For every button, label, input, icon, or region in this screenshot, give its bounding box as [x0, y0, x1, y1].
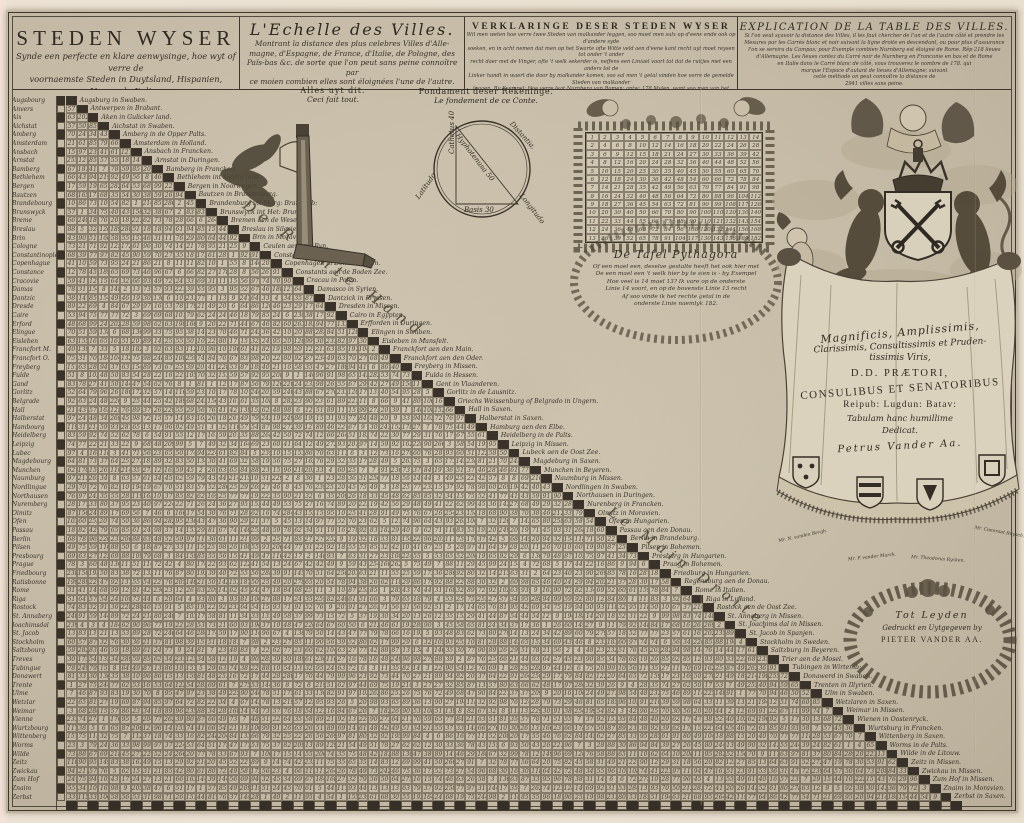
diagonal-cell — [196, 199, 207, 208]
distance-cell: 71 — [282, 603, 293, 612]
distance-cell: 9 — [822, 784, 833, 793]
distance-cell: 75 — [660, 689, 671, 698]
distance-cell: 131 — [260, 612, 271, 621]
distance-cell: 12 — [811, 784, 822, 793]
distance-cell: 65 — [433, 457, 444, 466]
distance-cell: 75 — [260, 741, 271, 750]
pythagoras-cell: 8 — [674, 133, 687, 141]
distance-cell: 50 — [843, 767, 854, 776]
distance-cell: 54 — [185, 681, 196, 690]
distance-cell: 64 — [109, 457, 120, 466]
distance-cell: 30 — [206, 457, 217, 466]
distance-cell: 24 — [88, 397, 99, 406]
distance-cell: 55 — [336, 380, 347, 389]
diagonal-city-label: Wittenberg in Saxen. — [879, 733, 945, 740]
distance-cell: 244 — [476, 793, 487, 802]
distance-cell: 51 — [271, 689, 282, 698]
distance-cell: 78 — [77, 380, 88, 389]
pythagoras-cell: 22 — [599, 217, 612, 225]
distance-cell: 72 — [131, 569, 142, 578]
distance-cell: 19 — [163, 621, 174, 630]
distance-cell: 13 — [293, 664, 304, 673]
distance-cell: 65 — [865, 741, 876, 750]
distance-cell: 58 — [304, 715, 315, 724]
distance-cell: 95 — [239, 500, 250, 509]
distance-cell: 255 — [88, 517, 99, 526]
city-row-label: Magdebourg — [12, 458, 57, 465]
distance-cell: 20 — [379, 406, 390, 415]
distance-cell: 69 — [519, 474, 530, 483]
distance-cell: 69 — [250, 440, 261, 449]
distance-cell: 16 — [627, 569, 638, 578]
distance-cell: 285 — [314, 328, 325, 337]
distance-cell: 64 — [541, 767, 552, 776]
distance-cell: 97 — [465, 784, 476, 793]
distance-cell: 21 — [617, 758, 628, 767]
distance-cell: 32 — [552, 535, 563, 544]
distance-cell: 90 — [77, 758, 88, 767]
distance-cell: 53 — [714, 681, 725, 690]
distance-cell: 70 — [347, 517, 358, 526]
pythagoras-cell: 24 — [624, 175, 637, 183]
distance-cell: 40 — [390, 363, 401, 372]
distance-cell: 215 — [465, 715, 476, 724]
distance-cell: 66 — [379, 397, 390, 406]
distance-cell: 72 — [152, 629, 163, 638]
distance-cell: 1 — [498, 664, 509, 673]
distance-cell: 282 — [163, 517, 174, 526]
distance-cell: 57 — [498, 595, 509, 604]
city-row-label: Erford — [12, 321, 57, 328]
distance-cell: 81 — [800, 750, 811, 759]
distance-cell: 41 — [88, 165, 99, 174]
distance-cell: 38 — [185, 328, 196, 337]
distance-cell: 51 — [66, 371, 77, 380]
distance-cell: 89 — [314, 715, 325, 724]
distance-cell: 259 — [185, 354, 196, 363]
distance-cell: 282 — [368, 371, 379, 380]
distance-cell: 15 — [98, 277, 109, 286]
distance-cell: 42 — [552, 629, 563, 638]
distance-cell: 57 — [239, 423, 250, 432]
distance-cell: 82 — [563, 758, 574, 767]
distance-cell: 62 — [379, 578, 390, 587]
distance-cell: 14 — [88, 586, 99, 595]
city-row-label: Donawert — [12, 673, 57, 680]
distance-cell: 83 — [185, 414, 196, 423]
distance-cell: 89 — [487, 646, 498, 655]
distance-cell: 70 — [347, 354, 358, 363]
distance-cell: 99 — [487, 560, 498, 569]
distance-cell: 27 — [282, 638, 293, 647]
distance-cell: 202 — [109, 320, 120, 329]
distance-cell: 63 — [77, 363, 88, 372]
diagonal-cell — [638, 552, 649, 561]
distance-cell: 51 — [433, 603, 444, 612]
distance-cell: 56 — [271, 457, 282, 466]
distance-cell: 69 — [368, 681, 379, 690]
distance-cell: 88 — [196, 707, 207, 716]
distance-cell: 68 — [455, 689, 466, 698]
distance-cell: 84 — [660, 586, 671, 595]
distance-cell: 78 — [109, 165, 120, 174]
distance-cell: 5 — [779, 715, 790, 724]
distance-cell: 94 — [88, 775, 99, 784]
distance-cell: 62 — [401, 741, 412, 750]
diagonal-city-label: Amberg in de Opper Palts. — [123, 131, 206, 138]
distance-cell: 64 — [660, 750, 671, 759]
distance-cell: 30 — [379, 612, 390, 621]
distance-cell: 29 — [293, 345, 304, 354]
distance-cell: 10 — [660, 603, 671, 612]
pythagoras-cell: 55 — [712, 167, 725, 175]
distance-cell: 49 — [444, 474, 455, 483]
distance-cell: 136 — [293, 629, 304, 638]
distance-cell: 224 — [174, 741, 185, 750]
distance-cell: 246 — [250, 388, 261, 397]
distance-cell: 92 — [185, 758, 196, 767]
edge-checker-cell — [57, 208, 65, 217]
distance-cell: 32 — [476, 698, 487, 707]
edge-checker-cell — [57, 251, 65, 260]
distance-cell: 178 — [401, 423, 412, 432]
distance-cell: 31 — [401, 603, 412, 612]
distance-cell: 24 — [98, 741, 109, 750]
distance-cell: 10 — [120, 483, 131, 492]
distance-cell: 70 — [768, 732, 779, 741]
distance-cell: 99 — [142, 741, 153, 750]
distance-cell: 202 — [77, 113, 88, 122]
city-row-label: Weimar — [12, 708, 57, 715]
distance-cell: 55 — [109, 492, 120, 501]
distance-cell: 100 — [260, 750, 271, 759]
distance-cell: 254 — [444, 509, 455, 518]
distance-cell: 58 — [109, 234, 120, 243]
distance-cell: 105 — [573, 552, 584, 561]
distance-cell: 54 — [584, 517, 595, 526]
distance-cell: 43 — [77, 173, 88, 182]
distance-cell: 41 — [509, 492, 520, 501]
distance-cell: 68 — [66, 191, 77, 200]
distance-cell: 61 — [217, 681, 228, 690]
distance-cell: 28 — [412, 388, 423, 397]
distance-cell: 52 — [671, 595, 682, 604]
distance-cell: 74 — [185, 724, 196, 733]
distance-cell: 136 — [530, 552, 541, 561]
distance-cell: 122 — [98, 552, 109, 561]
pythagoras-cell: 28 — [661, 158, 674, 166]
distance-cell: 5 — [196, 664, 207, 673]
distance-cell: 68 — [487, 509, 498, 518]
distance-cell: 85 — [88, 156, 99, 165]
distance-cell: 11 — [530, 543, 541, 552]
distance-cell: 107 — [250, 474, 261, 483]
distance-cell: 280 — [282, 672, 293, 681]
distance-cell: 233 — [66, 715, 77, 724]
distance-cell: 57 — [66, 105, 77, 114]
distance-cell: 156 — [735, 750, 746, 759]
pythagoras-cell: 18 — [611, 175, 624, 183]
distance-cell: 73 — [152, 363, 163, 372]
distance-cell: 75 — [444, 423, 455, 432]
distance-cell: 31 — [476, 784, 487, 793]
diagonal-cell — [563, 492, 574, 501]
pythagoras-cell: 40 — [674, 167, 687, 175]
distance-cell: 99 — [174, 440, 185, 449]
matrix-row: 2475941043172427132166163144391445669943… — [66, 775, 994, 784]
distance-cell: 55 — [412, 552, 423, 561]
distance-cell: 13 — [347, 715, 358, 724]
distance-cell: 70 — [746, 750, 757, 759]
distance-cell: 287 — [509, 543, 520, 552]
distance-cell: 71 — [228, 509, 239, 518]
distance-cell: 21 — [239, 535, 250, 544]
distance-cell: 93 — [260, 543, 271, 552]
pythagoras-cell: 84 — [724, 183, 737, 191]
pythagoras-cell: 28 — [624, 183, 637, 191]
city-row-label: Hall — [12, 407, 57, 414]
distance-cell: 96 — [606, 767, 617, 776]
distance-cell: 6 — [606, 775, 617, 784]
distance-cell: 61 — [368, 793, 379, 802]
distance-cell: 77 — [649, 629, 660, 638]
distance-cell: 72 — [293, 431, 304, 440]
distance-cell: 75 — [552, 758, 563, 767]
distance-cell: 60 — [304, 646, 315, 655]
pythagoras-cell: 36 — [724, 150, 737, 158]
distance-cell: 7 — [800, 775, 811, 784]
distance-cell: 67 — [163, 268, 174, 277]
diagonal-cell — [779, 664, 790, 673]
french-explanation-title: EXPLICATION DE LA TABLE DES VILLES. — [738, 22, 1011, 33]
distance-cell: 12 — [304, 440, 315, 449]
distance-cell: 24 — [120, 259, 131, 268]
distance-cell: 53 — [228, 363, 239, 372]
distance-cell: 248 — [66, 612, 77, 621]
distance-cell: 97 — [98, 251, 109, 260]
distance-cell: 80 — [822, 750, 833, 759]
distance-cell: 168 — [444, 586, 455, 595]
matrix-row: 9263244822092544254218968245156431616135… — [66, 397, 598, 406]
distance-cell: 77 — [228, 492, 239, 501]
distance-cell: 26 — [185, 586, 196, 595]
distance-cell: 277 — [228, 500, 239, 509]
diagonal-cell — [876, 741, 887, 750]
distance-cell: 37 — [811, 750, 822, 759]
distance-cell: 66 — [250, 732, 261, 741]
pythagoras-cell: 39 — [611, 234, 624, 242]
distance-cell: 28 — [811, 732, 822, 741]
distance-cell: 8 — [163, 259, 174, 268]
distance-cell: 50 — [185, 337, 196, 346]
distance-cell: 17 — [789, 715, 800, 724]
pythagoras-cell: 4 — [624, 133, 637, 141]
distance-cell: 31 — [77, 285, 88, 294]
distance-cell: 88 — [260, 664, 271, 673]
distance-cell: 91 — [509, 672, 520, 681]
pythagoras-table: 1234567891011121314246810121416182022242… — [585, 132, 763, 243]
distance-cell: 193 — [368, 612, 379, 621]
distance-cell: 2 — [260, 638, 271, 647]
distance-cell: 20 — [660, 715, 671, 724]
distance-cell: 116 — [142, 560, 153, 569]
bottom-checker-cell — [919, 801, 930, 810]
distance-cell: 84 — [336, 707, 347, 716]
distance-cell: 7 — [433, 560, 444, 569]
distance-cell: 88 — [444, 578, 455, 587]
distance-cell: 13 — [109, 629, 120, 638]
diagonal-cell — [498, 440, 509, 449]
bottom-checker-cell — [401, 801, 412, 810]
distance-cell: 78 — [617, 569, 628, 578]
distance-cell: 162 — [422, 414, 433, 423]
distance-cell: 242 — [260, 414, 271, 423]
distance-cell: 87 — [422, 543, 433, 552]
distance-cell: 1 — [627, 595, 638, 604]
distance-cell: 92 — [455, 569, 466, 578]
distance-cell: 22 — [152, 371, 163, 380]
edge-checker-cell — [57, 672, 65, 681]
distance-cell: 55 — [563, 715, 574, 724]
distance-cell: 99 — [800, 707, 811, 716]
pythagoras-cell: 12 — [611, 158, 624, 166]
distance-cell: 3 — [163, 552, 174, 561]
distance-cell: 118 — [573, 535, 584, 544]
distance-cell: 32 — [239, 457, 250, 466]
distance-cell: 90 — [476, 689, 487, 698]
distance-cell: 70 — [843, 732, 854, 741]
distance-cell: 68 — [77, 707, 88, 716]
matrix-row: 5928283465918896124779248172348837226277… — [66, 646, 839, 655]
distance-cell: 91 — [163, 603, 174, 612]
distance-cell: 5 — [109, 345, 120, 354]
text-line: soeken, en in acht nemen dat men op het … — [465, 46, 736, 60]
distance-cell: 51 — [519, 646, 530, 655]
distance-cell: 86 — [444, 732, 455, 741]
pythagoras-cell: 130 — [737, 208, 750, 216]
distance-cell: 9 — [595, 621, 606, 630]
distance-cell: 31 — [77, 423, 88, 432]
distance-cell: 85 — [88, 294, 99, 303]
distance-cell: 12 — [390, 758, 401, 767]
distance-cell: 85 — [660, 655, 671, 664]
pythagoras-text-line: Hoe veel is 14 mael 13? Ik vare op de on… — [571, 279, 781, 285]
distance-cell: 57 — [77, 638, 88, 647]
distance-cell: 89 — [66, 302, 77, 311]
distance-cell: 5 — [422, 629, 433, 638]
matrix-row: 2970727682101941967705183575228625292692… — [66, 483, 638, 492]
distance-cell: 79 — [88, 388, 99, 397]
distance-cell: 110 — [444, 526, 455, 535]
distance-cell: 42 — [293, 758, 304, 767]
distance-cell: 9 — [120, 784, 131, 793]
distance-cell: 61 — [142, 646, 153, 655]
distance-cell: 154 — [509, 560, 520, 569]
distance-cell: 91 — [768, 664, 779, 673]
distance-cell: 34 — [304, 526, 315, 535]
distance-cell: 31 — [152, 234, 163, 243]
edge-checker-cell — [57, 492, 65, 501]
distance-cell: 7 — [476, 758, 487, 767]
city-row-label: Zerbst — [12, 794, 57, 801]
pythagoras-cell: 14 — [749, 133, 762, 141]
distance-cell: 75 — [98, 208, 109, 217]
distance-cell: 25 — [617, 543, 628, 552]
distance-cell: 59 — [142, 251, 153, 260]
distance-cell: 225 — [228, 689, 239, 698]
city-row-label: Breme — [12, 217, 57, 224]
distance-cell: 74 — [196, 354, 207, 363]
distance-cell: 1 — [206, 380, 217, 389]
distance-cell: 43 — [98, 130, 109, 139]
distance-cell: 94 — [250, 775, 261, 784]
distance-cell: 66 — [66, 216, 77, 225]
distance-cell: 60 — [573, 543, 584, 552]
distance-cell: 78 — [66, 664, 77, 673]
distance-cell: 14 — [465, 603, 476, 612]
distance-cell: 46 — [185, 629, 196, 638]
distance-cell: 82 — [282, 741, 293, 750]
distance-cell: 224 — [401, 552, 412, 561]
dutch-explanation-text: Wil men weten hoe verre twee Steden van … — [465, 32, 736, 89]
distance-cell: 18 — [735, 672, 746, 681]
distance-cell: 88 — [606, 741, 617, 750]
distance-cell: 96 — [476, 767, 487, 776]
distance-cell: 45 — [476, 500, 487, 509]
distance-cell: 7 — [120, 732, 131, 741]
distance-cell: 18 — [552, 793, 563, 802]
distance-cell: 68 — [163, 311, 174, 320]
matrix-row: 2381561955083387213311768780192394072555… — [66, 569, 751, 578]
matrix-row: 9721126934863576134456259794344214215107… — [66, 474, 623, 483]
distance-cell: 68 — [142, 182, 153, 191]
diagonal-cell — [627, 543, 638, 552]
distance-cell: 49 — [390, 509, 401, 518]
distance-cell: 44 — [217, 474, 228, 483]
distance-cell: 49 — [422, 500, 433, 509]
distance-cell: 201 — [260, 388, 271, 397]
city-row-label: Friedbourg — [12, 570, 57, 577]
distance-cell: 177 — [77, 500, 88, 509]
pythagoras-cell: 14 — [599, 183, 612, 191]
edge-checker-cell — [57, 431, 65, 440]
distance-cell: 6 — [519, 552, 530, 561]
matrix-row: 3141146899128142236231226632091436245243… — [66, 586, 745, 595]
distance-cell: 59 — [217, 629, 228, 638]
distance-cell: 64 — [174, 698, 185, 707]
distance-cell: 11 — [293, 793, 304, 802]
distance-cell: 86 — [627, 741, 638, 750]
distance-cell: 89 — [336, 397, 347, 406]
distance-cell: 63 — [336, 354, 347, 363]
pythagoras-cell: 8 — [599, 158, 612, 166]
distance-cell: 23 — [196, 689, 207, 698]
distance-cell: 13 — [401, 646, 412, 655]
distance-cell: 98 — [476, 483, 487, 492]
distance-cell: 30 — [282, 655, 293, 664]
diagonal-cell — [433, 388, 444, 397]
distance-cell: 133 — [98, 655, 109, 664]
distance-cell: 35 — [325, 492, 336, 501]
distance-cell: 37 — [358, 612, 369, 621]
pythagoras-cell: 4 — [586, 158, 599, 166]
distance-cell: 64 — [77, 595, 88, 604]
distance-cell: 46 — [228, 311, 239, 320]
distance-cell: 57 — [606, 629, 617, 638]
distance-cell: 45 — [88, 268, 99, 277]
circle-caption-dutch: Fondament deser Rekeninge. — [398, 86, 574, 96]
distance-cell: 83 — [455, 526, 466, 535]
